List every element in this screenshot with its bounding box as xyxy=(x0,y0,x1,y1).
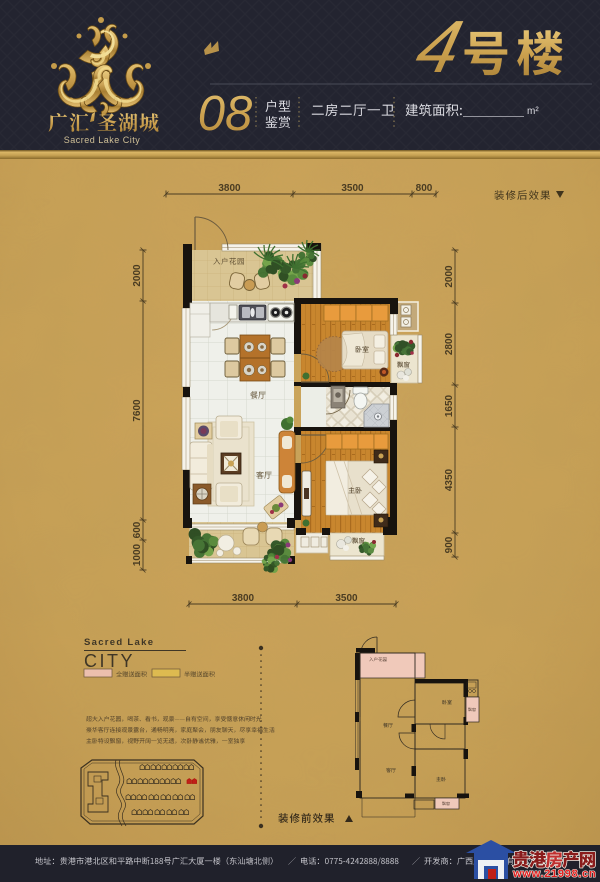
svg-text:1000: 1000 xyxy=(132,543,143,566)
svg-text:7600: 7600 xyxy=(132,399,143,422)
svg-text:3800: 3800 xyxy=(232,593,255,604)
svg-text:Sacred Lake: Sacred Lake xyxy=(84,637,154,648)
svg-text:3500: 3500 xyxy=(335,593,358,604)
svg-text:600: 600 xyxy=(132,521,143,538)
svg-text:800: 800 xyxy=(416,183,433,194)
svg-text:2000: 2000 xyxy=(132,264,143,287)
svg-text:CITY: CITY xyxy=(84,651,135,671)
svg-text:m²: m² xyxy=(527,106,539,117)
svg-text:4350: 4350 xyxy=(444,468,455,491)
svg-text:900: 900 xyxy=(444,536,455,553)
svg-text:Sacred Lake City: Sacred Lake City xyxy=(64,135,141,145)
svg-text:08: 08 xyxy=(198,87,253,141)
svg-text:1650: 1650 xyxy=(444,394,455,417)
svg-text:www.21998.cn: www.21998.cn xyxy=(512,868,596,880)
svg-text:2000: 2000 xyxy=(444,265,455,288)
svg-text:2800: 2800 xyxy=(444,332,455,355)
svg-text:3800: 3800 xyxy=(218,183,241,194)
svg-text:3500: 3500 xyxy=(341,183,364,194)
